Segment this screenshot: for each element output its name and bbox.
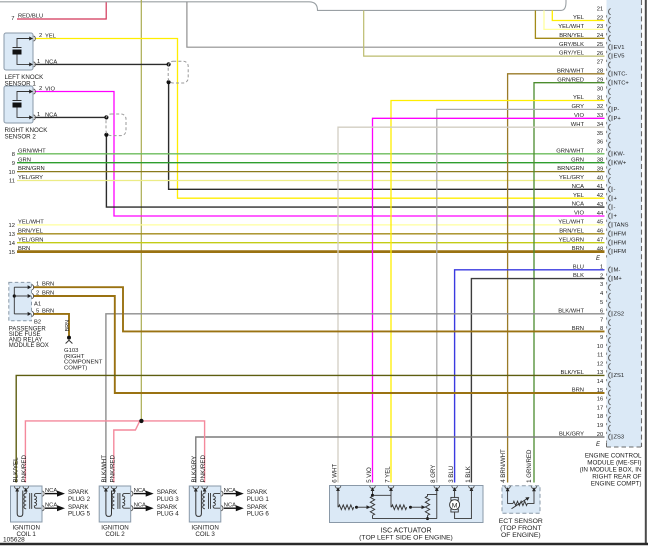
- svg-text:B2: B2: [34, 320, 41, 326]
- svg-text:ISC ACTUATOR: ISC ACTUATOR: [380, 528, 431, 535]
- svg-text:ZS1: ZS1: [614, 373, 625, 379]
- svg-text:BRN: BRN: [65, 320, 71, 332]
- svg-text:BLK/GRY: BLK/GRY: [191, 456, 198, 483]
- svg-text:PNK/RED: PNK/RED: [21, 454, 28, 482]
- svg-text:1: 1: [36, 282, 39, 288]
- svg-text:12: 12: [9, 223, 15, 229]
- svg-text:YEL/WHT: YEL/WHT: [18, 220, 44, 226]
- svg-text:MODULE (ME-SFI): MODULE (ME-SFI): [587, 460, 641, 467]
- svg-text:P-: P-: [614, 107, 620, 113]
- svg-text:HFM: HFM: [614, 231, 627, 237]
- svg-text:8 GRY: 8 GRY: [430, 465, 437, 483]
- svg-text:PLUG 2: PLUG 2: [68, 496, 91, 503]
- svg-text:VIO: VIO: [45, 87, 55, 93]
- svg-text:RIGHT REAR OF: RIGHT REAR OF: [592, 474, 641, 481]
- svg-text:ENGINE CONTROL: ENGINE CONTROL: [585, 453, 642, 460]
- svg-text:10: 10: [9, 170, 15, 176]
- svg-text:1 GRN/RED: 1 GRN/RED: [526, 449, 533, 483]
- svg-text:COIL 2: COIL 2: [105, 531, 125, 538]
- svg-text:ECT SENSOR: ECT SENSOR: [499, 518, 543, 525]
- svg-text:7 YEL: 7 YEL: [384, 466, 391, 483]
- svg-text:8: 8: [12, 152, 15, 158]
- svg-text:KW-: KW-: [614, 151, 625, 157]
- svg-text:COMPT): COMPT): [64, 365, 87, 371]
- svg-text:ZS2: ZS2: [614, 311, 625, 317]
- svg-text:18: 18: [597, 414, 603, 420]
- svg-text:YEL/GRY: YEL/GRY: [18, 175, 43, 181]
- svg-text:3 BLU: 3 BLU: [448, 466, 455, 483]
- svg-text:21: 21: [597, 6, 603, 12]
- svg-text:BRN/GRN: BRN/GRN: [18, 166, 45, 172]
- svg-text:PLUG 5: PLUG 5: [68, 510, 91, 517]
- svg-text:A1: A1: [34, 302, 41, 308]
- svg-text:2: 2: [39, 86, 42, 92]
- svg-text:7: 7: [600, 317, 603, 323]
- svg-text:1: 1: [37, 112, 40, 118]
- svg-text:BRN: BRN: [42, 308, 54, 314]
- svg-text:NCA: NCA: [45, 60, 57, 66]
- svg-text:ENGINE COMPT): ENGINE COMPT): [591, 481, 642, 488]
- svg-text:14: 14: [597, 379, 604, 385]
- svg-text:M: M: [452, 502, 458, 509]
- svg-text:BRN/YEL: BRN/YEL: [18, 228, 44, 234]
- svg-text:KW+: KW+: [614, 160, 627, 166]
- svg-text:P+: P+: [614, 116, 622, 122]
- svg-text:ZS3: ZS3: [614, 435, 625, 441]
- svg-text:EV1: EV1: [614, 45, 625, 51]
- svg-text:NTC-: NTC-: [614, 71, 628, 77]
- svg-text:4 BRN/WHT: 4 BRN/WHT: [500, 449, 507, 483]
- svg-text:BRN: BRN: [42, 282, 54, 288]
- svg-text:19: 19: [597, 423, 603, 429]
- svg-text:NTC+: NTC+: [614, 80, 630, 86]
- svg-text:BLK/WHT: BLK/WHT: [101, 455, 108, 483]
- svg-text:27: 27: [597, 60, 603, 66]
- svg-text:3: 3: [600, 282, 603, 288]
- svg-text:36: 36: [597, 140, 603, 146]
- svg-text:11: 11: [597, 353, 603, 359]
- svg-text:GRN/WHT: GRN/WHT: [18, 148, 46, 154]
- svg-text:COIL 1: COIL 1: [17, 531, 37, 538]
- svg-text:13: 13: [9, 232, 15, 238]
- svg-text:SENSOR 2: SENSOR 2: [5, 133, 37, 140]
- svg-text:YEL/GRN: YEL/GRN: [18, 237, 43, 243]
- svg-text:-: -: [614, 187, 616, 193]
- svg-text:9: 9: [12, 161, 15, 167]
- svg-text:BRN: BRN: [42, 290, 54, 296]
- svg-text:BRN: BRN: [18, 246, 30, 252]
- svg-text:16: 16: [597, 397, 603, 403]
- svg-text:1 BLK: 1 BLK: [465, 466, 472, 483]
- svg-text:M+: M+: [614, 276, 623, 282]
- svg-text:RED/BLU: RED/BLU: [18, 14, 43, 20]
- svg-text:10: 10: [597, 344, 603, 350]
- svg-text:COIL 3: COIL 3: [195, 531, 215, 538]
- svg-text:35: 35: [597, 131, 603, 137]
- svg-text:14: 14: [9, 241, 16, 247]
- svg-text:M-: M-: [614, 267, 621, 273]
- svg-text:PLUG 6: PLUG 6: [247, 510, 270, 517]
- svg-text:5 VIO: 5 VIO: [366, 467, 373, 483]
- svg-text:2: 2: [36, 290, 39, 296]
- svg-text:NCA: NCA: [45, 113, 57, 119]
- svg-text:11: 11: [9, 179, 15, 185]
- svg-text:PNK/RED: PNK/RED: [109, 454, 116, 482]
- svg-text:HFM: HFM: [614, 240, 627, 246]
- svg-text:MODULE BOX: MODULE BOX: [9, 343, 49, 349]
- svg-text:BLK/YEL: BLK/YEL: [13, 457, 20, 483]
- svg-text:(TOP LEFT SIDE OF ENGINE): (TOP LEFT SIDE OF ENGINE): [359, 535, 453, 542]
- svg-text:PNK/RED: PNK/RED: [200, 454, 207, 482]
- svg-text:15: 15: [9, 250, 15, 256]
- svg-text:5: 5: [600, 300, 603, 306]
- svg-text:PLUG 3: PLUG 3: [157, 496, 180, 503]
- svg-text:OF ENGINE): OF ENGINE): [501, 532, 541, 539]
- svg-text:TANS: TANS: [614, 223, 629, 229]
- svg-text:(TOP FRONT: (TOP FRONT: [500, 525, 541, 532]
- svg-text:1: 1: [37, 59, 40, 65]
- svg-text:5: 5: [36, 308, 39, 314]
- svg-text:9: 9: [600, 335, 603, 341]
- svg-text:17: 17: [597, 405, 603, 411]
- svg-text:HFM: HFM: [614, 249, 627, 255]
- svg-text:12: 12: [597, 361, 603, 367]
- svg-text:GRN: GRN: [18, 157, 31, 163]
- svg-text:2: 2: [39, 33, 42, 39]
- svg-text:6 WHT: 6 WHT: [331, 464, 338, 483]
- svg-text:EV5: EV5: [614, 54, 625, 60]
- svg-text:PLUG 1: PLUG 1: [247, 496, 270, 503]
- svg-text:(IN MODULE BOX, IN: (IN MODULE BOX, IN: [580, 467, 642, 474]
- svg-text:YEL: YEL: [45, 34, 57, 40]
- svg-text:30: 30: [597, 86, 603, 92]
- svg-text:7: 7: [11, 16, 14, 22]
- svg-text:-: -: [614, 205, 616, 211]
- svg-text:PLUG 4: PLUG 4: [157, 510, 180, 517]
